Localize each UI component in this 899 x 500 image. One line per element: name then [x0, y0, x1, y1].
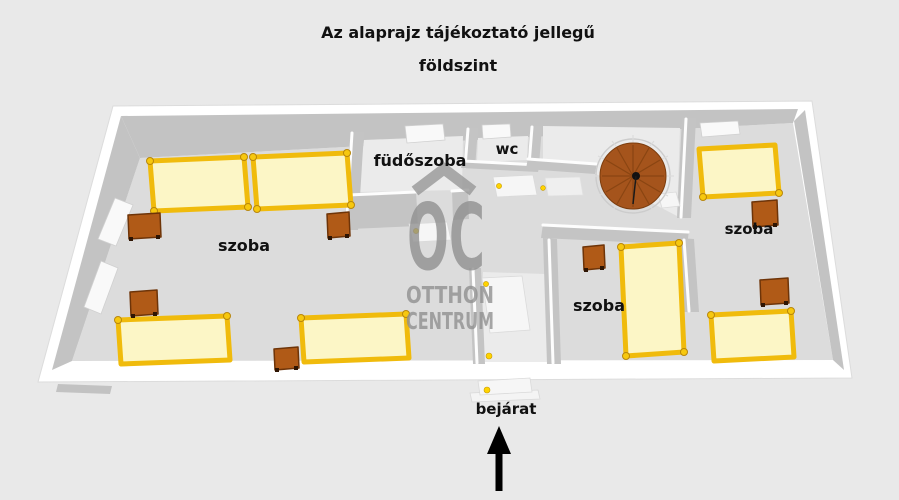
watermark-name-line1: OTTHON — [406, 283, 494, 309]
bed — [711, 311, 794, 361]
floorplan-page: OC OTTHON CENTRUM Az alaprajz tájékoztat… — [0, 0, 899, 500]
nightstand — [760, 278, 789, 305]
bed — [301, 314, 409, 362]
window — [405, 124, 445, 143]
door-handle — [496, 183, 501, 188]
bed — [253, 153, 351, 209]
door-handle — [484, 387, 490, 393]
bed — [118, 316, 230, 364]
door-handle — [486, 353, 492, 359]
bed — [699, 145, 779, 197]
arrow-shaft — [496, 450, 503, 491]
watermark: OC OTTHON CENTRUM — [406, 169, 494, 335]
door-handle — [541, 186, 546, 191]
floor-title: földszint — [419, 56, 498, 75]
window — [482, 124, 511, 139]
bed — [621, 243, 684, 356]
arrow-head — [487, 426, 511, 454]
door-leaf — [545, 177, 583, 196]
watermark-name-line2: CENTRUM — [406, 309, 494, 335]
room-label-bedroom-top-right: szoba — [725, 220, 774, 238]
room-label-living: szoba — [218, 236, 270, 255]
window — [700, 121, 740, 137]
exterior-step — [56, 384, 112, 394]
disclaimer-title: Az alaprajz tájékoztató jellegű — [321, 23, 595, 42]
entrance-arrow — [487, 426, 511, 491]
room-label-bedroom-middle: szoba — [573, 296, 625, 315]
floorplan-canvas: OC OTTHON CENTRUM Az alaprajz tájékoztat… — [0, 0, 899, 500]
watermark-logo-text: OC — [407, 184, 485, 291]
entrance-label: bejárat — [476, 400, 537, 418]
bed — [150, 157, 248, 211]
room-label-bathroom: füdőszoba — [374, 151, 467, 170]
room-label-wc: wc — [496, 140, 519, 158]
